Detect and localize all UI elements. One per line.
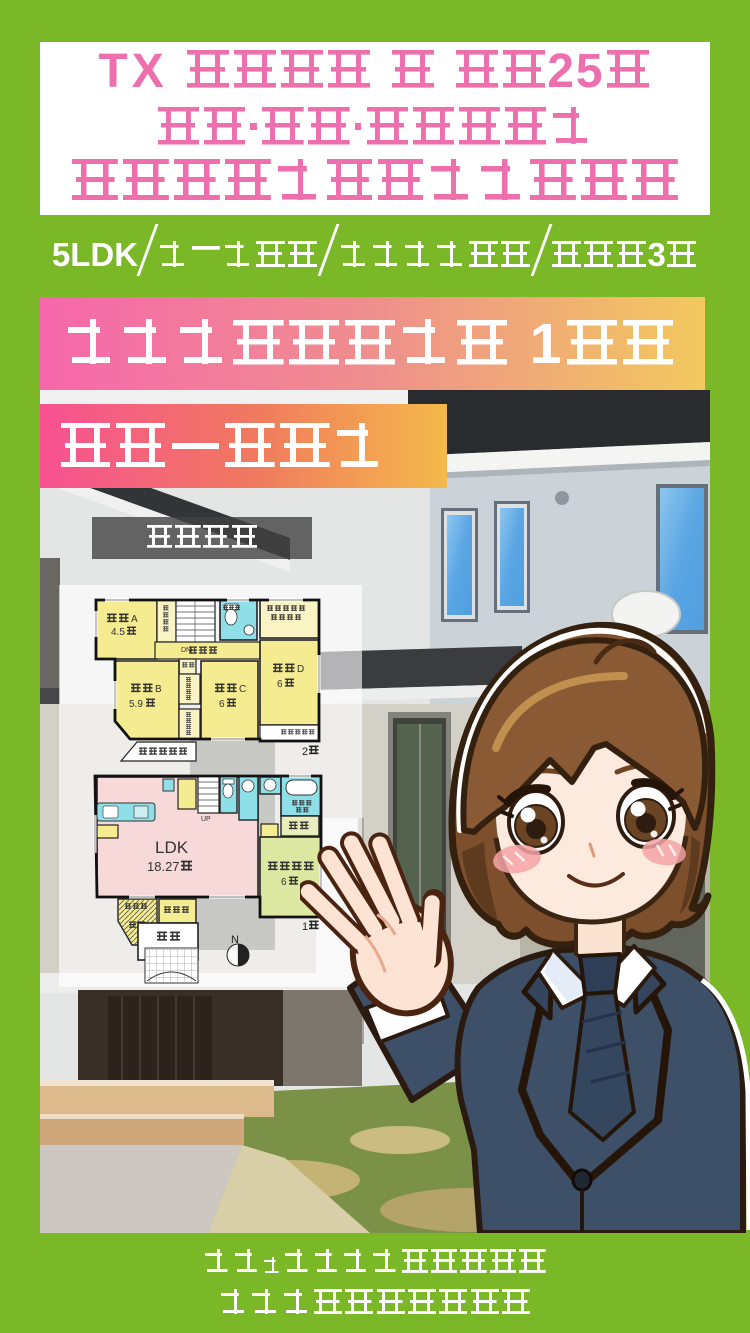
svg-text:5.9: 5.9 xyxy=(129,699,143,710)
svg-text:6: 6 xyxy=(277,679,283,690)
svg-text:C: C xyxy=(239,684,246,695)
svg-text:A: A xyxy=(131,614,138,625)
svg-text:4.5: 4.5 xyxy=(111,627,125,638)
svg-text:6: 6 xyxy=(219,699,225,710)
svg-text:UP: UP xyxy=(201,816,211,823)
svg-text:B: B xyxy=(155,684,162,695)
svg-text:LDK: LDK xyxy=(155,838,189,857)
svg-text:6: 6 xyxy=(281,877,287,888)
svg-text:18.27: 18.27 xyxy=(147,859,180,874)
